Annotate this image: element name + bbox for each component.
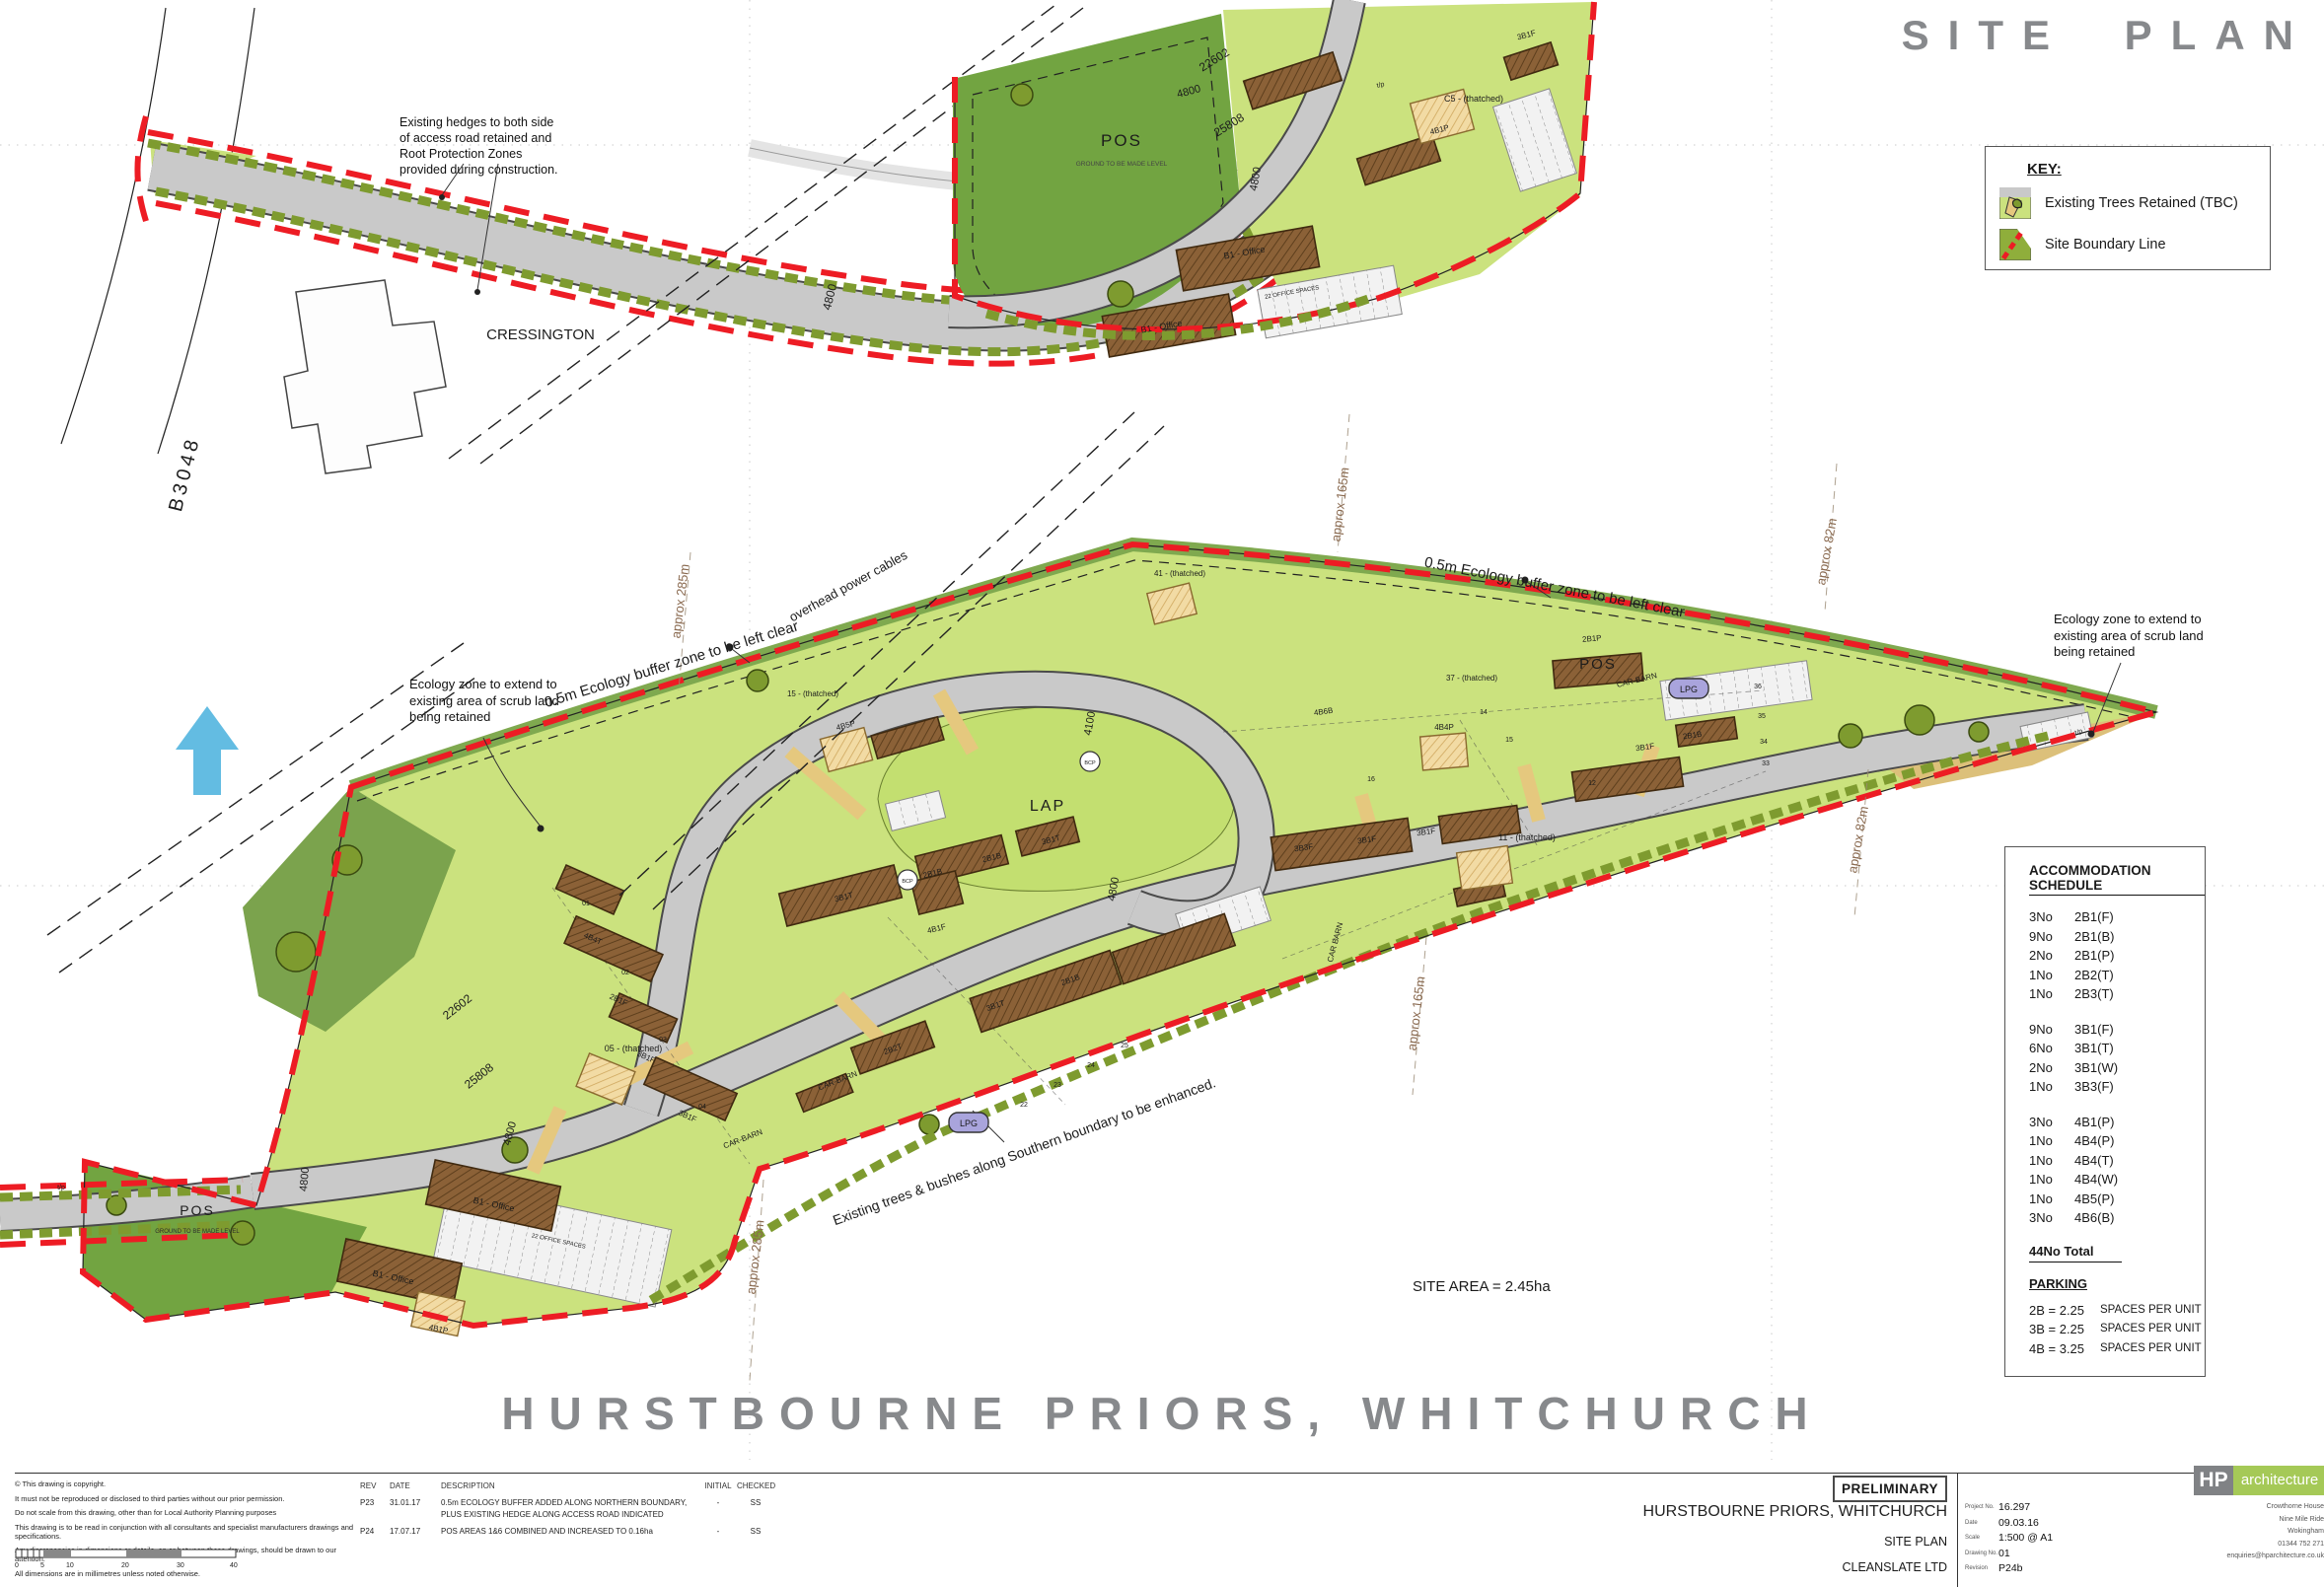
titleblock-client: CLEANSLATE LTD [1539, 1560, 1947, 1574]
plan-label: 24 [1087, 1062, 1095, 1069]
address-line: 01344 752 271 [2131, 1541, 2324, 1548]
schedule-row: 1No4B4(T) [2029, 1151, 2205, 1171]
sheet-title: SITE PLAN [1902, 12, 2312, 59]
tree [1905, 705, 1934, 735]
annotation-ecology-right: Ecology zone to extend to existing area … [2054, 612, 2214, 661]
titleblock-field: Scale1:500 @ A1 [1965, 1532, 2113, 1544]
drawing-sheet: LPG LPG BCP BCP B3048CRESSINGTONPOSGROUN… [0, 0, 2324, 1587]
plan-label: B3048 [165, 434, 204, 514]
logo-hp: HP [2194, 1466, 2233, 1495]
tree [276, 932, 316, 972]
revision-table: REV DATE DESCRIPTION INITIAL CHECKED P23… [360, 1481, 774, 1543]
key-legend: KEY: Existing Trees Retained (TBC) Site … [1985, 146, 2271, 270]
schedule-row: 1No4B4(P) [2029, 1131, 2205, 1151]
schedule-row: 1No4B4(W) [2029, 1170, 2205, 1190]
revision-header: REV DATE DESCRIPTION INITIAL CHECKED [360, 1481, 774, 1490]
site-boundary-swatch-icon [1999, 229, 2031, 260]
note-line: It must not be reproduced or disclosed t… [15, 1494, 355, 1503]
lpg-label: LPG [1680, 685, 1698, 694]
b3048-road-edge [158, 8, 254, 454]
plan-label: 22 [1020, 1102, 1028, 1109]
plan-label: GROUND TO BE MADE LEVEL [1076, 161, 1168, 168]
tree [919, 1115, 939, 1134]
schedule-row: 6No3B1(T) [2029, 1039, 2205, 1058]
plan-label: 04 [698, 1104, 706, 1111]
plan-label: 36 [1754, 684, 1762, 690]
schedule-total: 44No Total [2029, 1244, 2122, 1262]
plan-label: GROUND TO BE MADE LEVEL [155, 1229, 240, 1235]
leader-dot [439, 194, 445, 200]
north-detail-block [949, 0, 1594, 357]
bcp-marker: BCP [1080, 752, 1100, 771]
tree [1839, 724, 1862, 748]
architect-address: Crowthorne House Nine Mile Ride Wokingha… [2131, 1503, 2324, 1565]
tree [1108, 281, 1133, 307]
key-item-trees: Existing Trees Retained (TBC) [1999, 187, 2270, 219]
bcp-label: BCP [902, 879, 913, 885]
b3048-road-edge [61, 8, 166, 444]
plan-label: approx 165m [1328, 467, 1351, 542]
plan-label: 33 [1762, 760, 1770, 767]
address-line: Nine Mile Ride [2131, 1516, 2324, 1523]
trees-retained-swatch-icon [1999, 187, 2031, 219]
hp-architecture-logo: HP architecture [2194, 1466, 2324, 1495]
plan-label: approx 165m [1404, 975, 1427, 1051]
plan-label: approx 82m [1813, 517, 1840, 586]
plan-label: approx 285m [668, 563, 691, 639]
plan-label: 11 - (thatched) [1498, 832, 1556, 842]
address-line: Wokingham [2131, 1528, 2324, 1535]
scale-label: 40 [230, 1562, 238, 1569]
scale-label: 20 [121, 1562, 129, 1569]
leader-dot [474, 289, 480, 295]
plan-label: approx 285m [743, 1219, 766, 1295]
bcp-marker: BCP [898, 870, 917, 890]
logo-architecture: architecture [2233, 1466, 2324, 1495]
cressington-building [284, 280, 446, 473]
plan-label: 15 [1505, 737, 1513, 744]
schedule-title: ACCOMMODATION SCHEDULE [2029, 863, 2205, 896]
plan-label: C5 - (thatched) [1444, 94, 1503, 104]
plan-label: POS [1101, 131, 1142, 150]
plan-label: t/p [57, 1185, 65, 1191]
revision-row: P23 31.01.17 0.5m ECOLOGY BUFFER ADDED A… [360, 1497, 774, 1521]
scale-label: 5 [40, 1562, 44, 1569]
north-arrow-icon [176, 706, 239, 795]
footer-divider [15, 1473, 2316, 1474]
annotation-ecology-left: Ecology zone to extend to existing area … [409, 677, 559, 726]
schedule-row: 2No2B1(P) [2029, 946, 2205, 966]
titleblock-field: Project No.16.297 [1965, 1501, 2113, 1513]
schedule-row: 3No4B1(P) [2029, 1113, 2205, 1132]
scale-label: 30 [177, 1562, 184, 1569]
parking-row: 2B = 2.25SPACES PER UNIT [2029, 1301, 2205, 1321]
plan-label: 15 - (thatched) [787, 689, 838, 698]
thatched-building [1457, 846, 1513, 891]
plan-label: 4B4P [1434, 723, 1454, 732]
plan-label: 25 [1121, 1043, 1128, 1049]
plan-label: 03 [659, 1037, 667, 1044]
leader-dot [538, 826, 545, 832]
schedule-row: 1No3B3(F) [2029, 1077, 2205, 1097]
schedule-row: 2No3B1(W) [2029, 1058, 2205, 1078]
lpg-badge: LPG [1669, 679, 1708, 698]
plan-label: 01 [582, 901, 590, 907]
plan-label: 2B1P [1582, 633, 1602, 644]
titleblock-fields: Project No.16.297 Date09.03.16 Scale1:50… [1965, 1501, 2113, 1578]
key-item-boundary: Site Boundary Line [1999, 229, 2270, 260]
schedule-row: 9No3B1(F) [2029, 1020, 2205, 1040]
schedule-row: 1No2B3(T) [2029, 984, 2205, 1004]
note-line: Do not scale from this drawing, other th… [15, 1508, 355, 1517]
tree [107, 1195, 126, 1215]
parking-title: PARKING [2029, 1276, 2205, 1291]
address-line: enquiries@hparchitecture.co.uk [2131, 1552, 2324, 1559]
bcp-label: BCP [1084, 760, 1096, 766]
plan-label: LAP [1030, 798, 1065, 815]
tree [747, 670, 768, 691]
titleblock-field: RevisionP24b [1965, 1562, 2113, 1574]
titleblock-field: Date09.03.16 [1965, 1517, 2113, 1529]
plan-label: 12 [1588, 780, 1596, 787]
scale-bar-graphic [15, 1547, 252, 1560]
plan-label: 05 - (thatched) [605, 1044, 663, 1053]
tree [1969, 722, 1989, 742]
revision-row: P24 17.07.17 POS AREAS 1&6 COMBINED AND … [360, 1526, 774, 1538]
plan-label: 35 [1758, 713, 1766, 720]
plan-label: CRESSINGTON [486, 326, 595, 343]
plan-label: 23 [1053, 1082, 1061, 1089]
plan-label: 16 [1367, 776, 1375, 783]
plan-label: 4800 [298, 1167, 312, 1191]
scale-bar: 0 5 10 20 30 40 [15, 1547, 252, 1574]
plan-label: 37 - (thatched) [1446, 674, 1497, 683]
preliminary-stamp: PRELIMINARY [1833, 1476, 1947, 1502]
note-line: This drawing is to be read in conjunctio… [15, 1523, 355, 1541]
titleblock-project: HURSTBOURNE PRIORS, WHITCHURCH [1539, 1503, 1947, 1521]
plan-label: 14 [1480, 709, 1488, 716]
schedule-row: 3No2B1(F) [2029, 907, 2205, 927]
tree [1011, 84, 1033, 106]
key-title: KEY: [2027, 161, 2270, 178]
parking-row: 3B = 2.25SPACES PER UNIT [2029, 1320, 2205, 1339]
titleblock-divider [1957, 1473, 1958, 1587]
page-title: HURSTBOURNE PRIORS, WHITCHURCH [0, 1387, 2324, 1440]
titleblock-drawing-title: SITE PLAN [1539, 1535, 1947, 1549]
address-line: Crowthorne House [2131, 1503, 2324, 1510]
schedule-row: 3No4B6(B) [2029, 1208, 2205, 1228]
lpg-label: LPG [960, 1118, 978, 1128]
annotation-hedges: Existing hedges to both side of access r… [399, 114, 565, 178]
lpg-badge: LPG [949, 1113, 988, 1132]
schedule-row: 1No4B5(P) [2029, 1190, 2205, 1209]
site-plan-map: LPG LPG BCP BCP B3048CRESSINGTONPOSGROUN… [0, 0, 2324, 1587]
plan-label: 34 [1760, 739, 1768, 746]
schedule-row: 9No2B1(B) [2029, 927, 2205, 947]
plan-label: 02 [621, 970, 629, 976]
plan-label: POS [180, 1202, 215, 1218]
accommodation-schedule: ACCOMMODATION SCHEDULE 3No2B1(F) 9No2B1(… [2004, 846, 2206, 1377]
key-item-label: Site Boundary Line [2045, 237, 2166, 252]
key-item-label: Existing Trees Retained (TBC) [2045, 195, 2238, 211]
thatched-building [1420, 733, 1469, 770]
parking-row: 4B = 3.25SPACES PER UNIT [2029, 1339, 2205, 1359]
scale-label: 0 [15, 1562, 19, 1569]
plan-label: 41 - (thatched) [1154, 569, 1205, 578]
leader-dot [2088, 731, 2095, 738]
plan-label: POS [1579, 656, 1617, 673]
schedule-row: 1No2B2(T) [2029, 966, 2205, 985]
plan-label: approx 82m [1845, 805, 1871, 874]
site-area-note: SITE AREA = 2.45ha [1413, 1278, 1551, 1295]
titleblock-field: Drawing No.01 [1965, 1548, 2113, 1559]
note-line: © This drawing is copyright. [15, 1479, 355, 1488]
scale-label: 10 [66, 1562, 74, 1569]
